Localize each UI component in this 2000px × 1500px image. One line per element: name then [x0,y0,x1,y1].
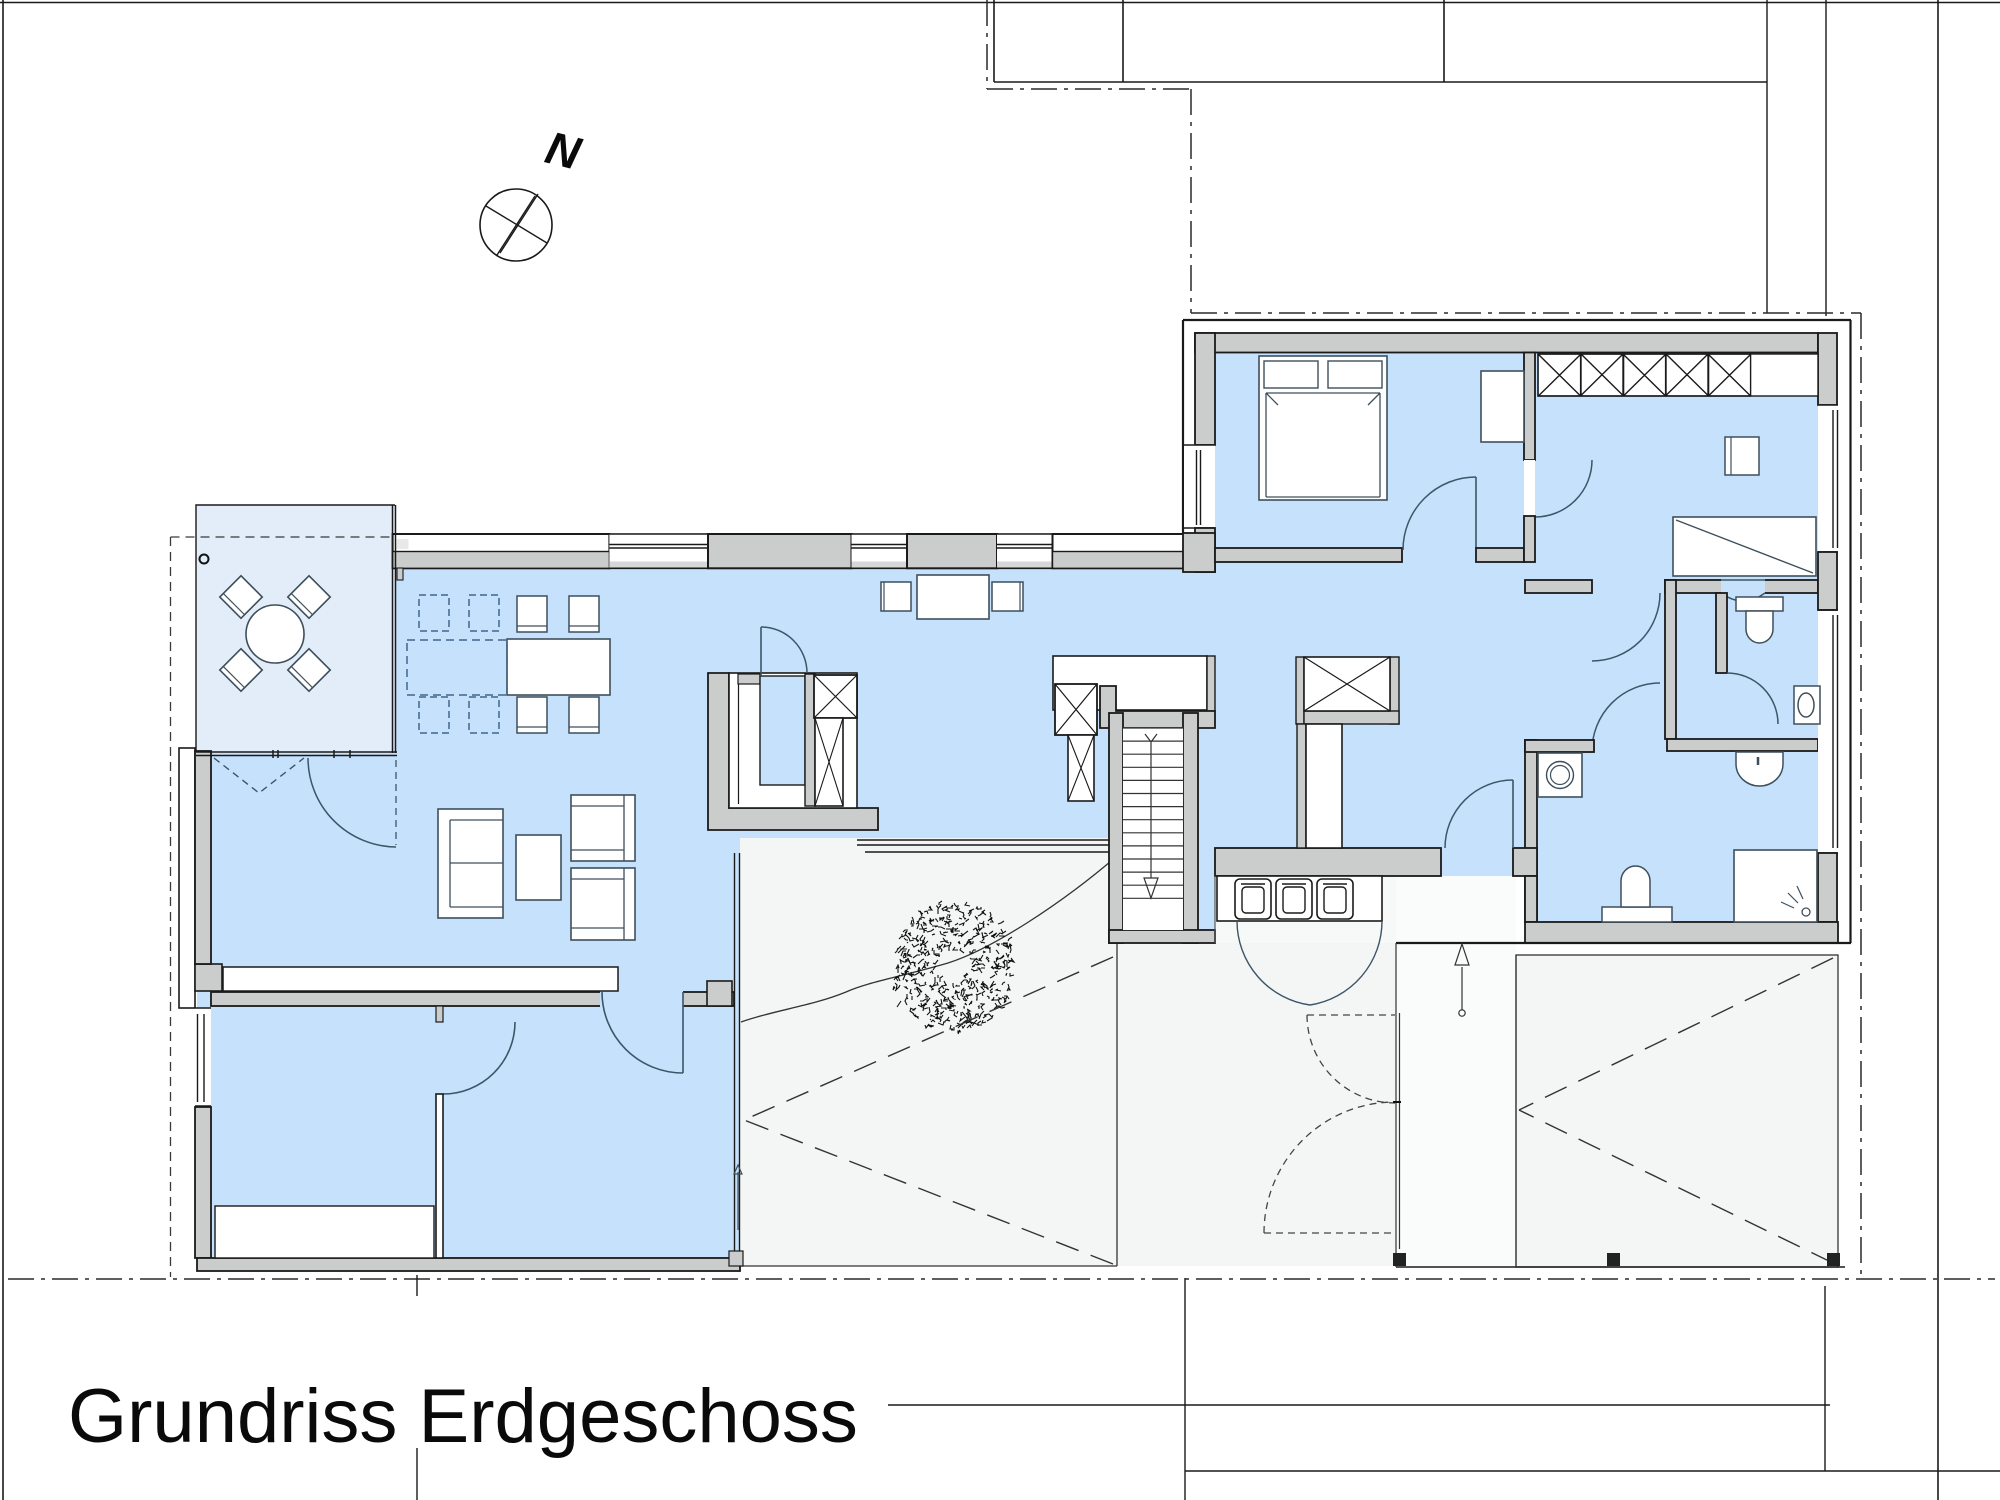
svg-text:Grundriss Erdgeschoss: Grundriss Erdgeschoss [68,1374,858,1459]
